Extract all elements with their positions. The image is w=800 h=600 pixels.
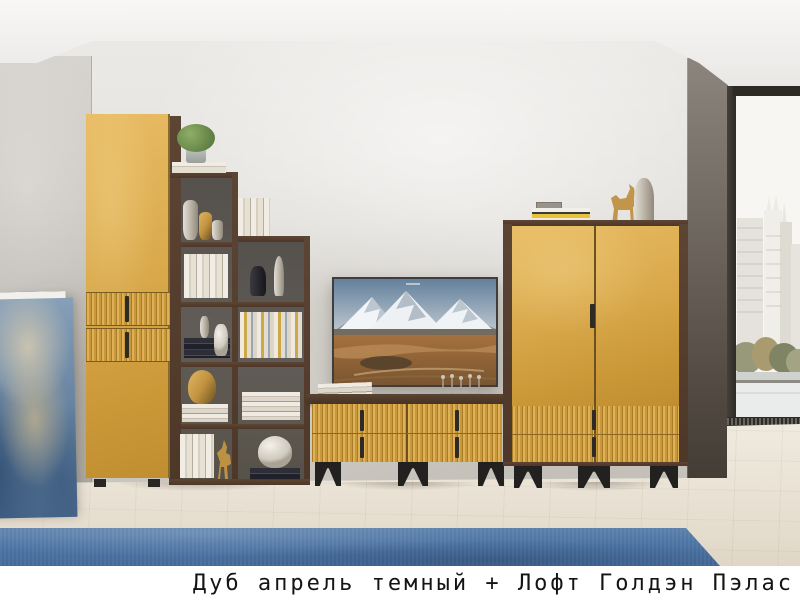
white-jug bbox=[214, 324, 228, 356]
window-city-view bbox=[736, 96, 800, 418]
gold-vase bbox=[188, 370, 216, 404]
abstract-painting bbox=[0, 291, 70, 512]
cabinet-foot bbox=[94, 479, 106, 487]
cabinet-foot bbox=[148, 479, 160, 487]
window-frame-top bbox=[733, 86, 800, 96]
silver-candelabra bbox=[438, 374, 484, 396]
dark-book-stack bbox=[250, 468, 300, 480]
dark-wall-column bbox=[687, 58, 728, 479]
vase bbox=[212, 220, 223, 240]
drawer-handle bbox=[125, 296, 129, 322]
vase bbox=[183, 200, 198, 240]
plant-foliage bbox=[177, 124, 215, 152]
books bbox=[184, 254, 228, 298]
window-frame-left bbox=[727, 86, 736, 427]
caption-bar: Дуб апрель темный + Лофт Голдэн Пэлас bbox=[0, 566, 800, 600]
shelf-right-upright bbox=[304, 236, 310, 485]
sitting-figurine bbox=[200, 316, 209, 338]
wardrobe-bottom-edge bbox=[503, 462, 688, 466]
tv bbox=[332, 277, 498, 387]
drawer-handle bbox=[125, 332, 129, 358]
tv-stand-top bbox=[306, 394, 508, 404]
shelf-board bbox=[181, 424, 304, 429]
tall-silver-vase bbox=[634, 178, 654, 224]
book-stack bbox=[182, 404, 228, 422]
blue-rug bbox=[0, 528, 722, 566]
interior-photo: Дуб апрель темный + Лофт Голдэн Пэлас bbox=[0, 0, 800, 600]
drawer-handle bbox=[592, 410, 596, 430]
standing-books bbox=[238, 198, 270, 236]
drawer-handle bbox=[360, 437, 364, 458]
drawer-handle bbox=[455, 410, 459, 431]
books bbox=[180, 434, 214, 478]
vase bbox=[199, 212, 212, 240]
tv-stand-drawer-gap bbox=[312, 433, 502, 434]
round-white-vase bbox=[258, 436, 292, 468]
book-stack bbox=[242, 392, 300, 420]
book-stack bbox=[172, 162, 226, 173]
painting-mat bbox=[0, 291, 70, 512]
wardrobe-shadow bbox=[500, 482, 694, 495]
drawer-handle bbox=[592, 437, 596, 457]
wardrobe-side bbox=[503, 224, 512, 464]
painting-art bbox=[0, 298, 77, 519]
greyhound-figurine bbox=[214, 438, 234, 480]
shelf-board bbox=[181, 242, 232, 247]
books bbox=[240, 312, 302, 358]
wardrobe-side bbox=[679, 224, 688, 464]
drawer-handle bbox=[455, 437, 459, 458]
tv-screen-mountains bbox=[334, 279, 496, 385]
figurine bbox=[274, 256, 284, 296]
drawer-handle bbox=[360, 410, 364, 431]
shelf-top-b bbox=[232, 236, 310, 242]
caption-text: Дуб апрель темный + Лофт Голдэн Пэлас bbox=[193, 571, 794, 596]
shelf-board bbox=[181, 362, 304, 367]
wardrobe-drawer-gap bbox=[512, 434, 679, 435]
tall-gold-cabinet bbox=[86, 114, 170, 487]
shelf-board bbox=[181, 302, 304, 307]
dark-vase bbox=[250, 266, 266, 296]
door-handle bbox=[590, 304, 595, 328]
